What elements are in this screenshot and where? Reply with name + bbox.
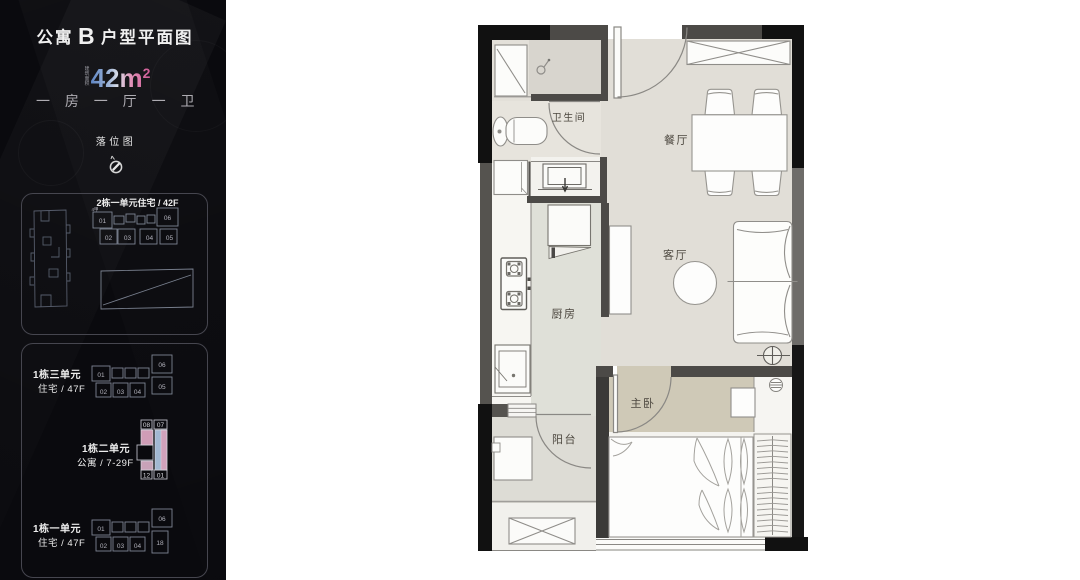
svg-text:厨房: 厨房 [552,308,577,321]
svg-text:卫生间: 卫生间 [552,111,587,124]
svg-text:阳台: 阳台 [552,432,577,446]
svg-text:餐厅: 餐厅 [664,133,689,147]
svg-text:主卧: 主卧 [631,397,656,410]
svg-text:客厅: 客厅 [663,248,688,262]
